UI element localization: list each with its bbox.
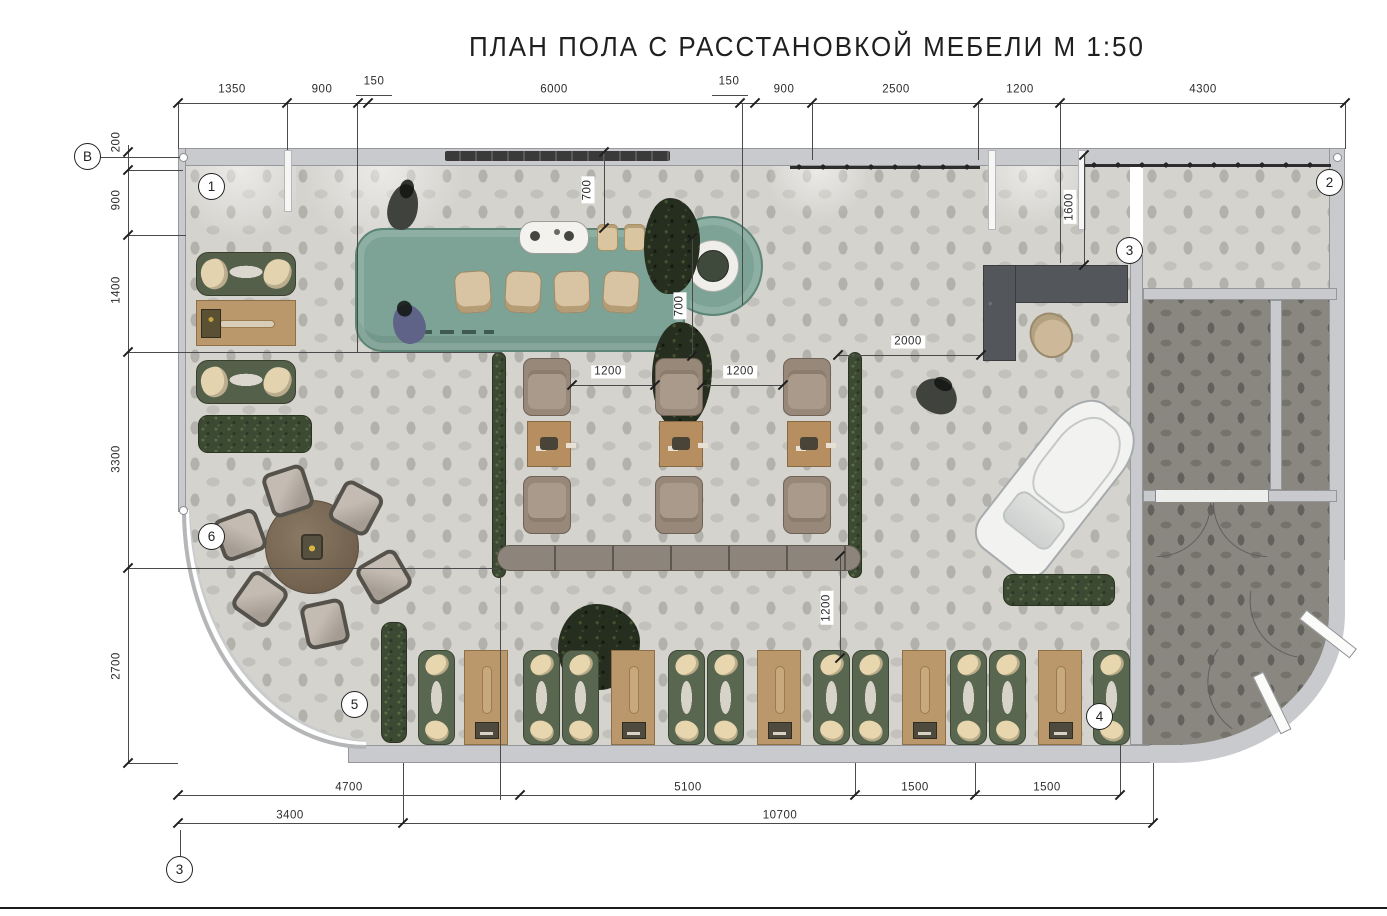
wall-node-3 — [1333, 153, 1342, 162]
hedge-center-left — [492, 352, 506, 578]
coffee-table-1 — [527, 421, 571, 467]
wall-pier-1 — [284, 150, 292, 212]
pedicure-table-5 — [1038, 650, 1082, 745]
wall-partition-h1 — [1143, 288, 1337, 300]
ext-top-right-end — [1345, 103, 1346, 149]
leader-axis3 — [180, 830, 181, 856]
ext-left-170 — [128, 170, 183, 171]
armchair-3a — [783, 358, 831, 416]
pedicure-table-2 — [611, 650, 655, 745]
dimension-label: 1200 — [723, 366, 757, 379]
dimension-label: 200 — [111, 129, 124, 156]
dim-1200-v — [840, 556, 841, 658]
ext-left-235 — [128, 235, 186, 236]
door-gap-fitting — [1155, 490, 1269, 502]
leader-B — [100, 157, 180, 158]
dimension-label: 2000 — [891, 336, 925, 349]
axis-marker: 3 — [1116, 237, 1143, 264]
fitting-hall-floor — [1143, 166, 1337, 290]
dimension-label: 1350 — [215, 84, 249, 97]
dimension-label: 6000 — [537, 84, 571, 97]
armchair-2a — [655, 358, 703, 416]
ext-top-left-end — [178, 103, 179, 149]
ext-bot-500 — [500, 575, 501, 800]
dimension-label: 3400 — [273, 810, 307, 823]
hedge-center-right — [848, 352, 862, 578]
dimension-label: 2500 — [879, 84, 913, 97]
ext-bot-1120 — [1120, 745, 1121, 795]
dim-1600 — [1084, 155, 1085, 265]
wall-partition-v2 — [1270, 300, 1282, 490]
bar-cup-2 — [624, 224, 645, 251]
ext-742 — [742, 103, 743, 305]
wall-node-1 — [179, 153, 188, 162]
manicure-table — [196, 300, 296, 346]
axis-marker: В — [74, 143, 101, 170]
dimension-label: 150 — [716, 76, 743, 89]
dimension-label: 4700 — [332, 782, 366, 795]
ext-812 — [812, 103, 813, 160]
pedicure-lounger-6 — [813, 650, 850, 745]
ext-bot-1153 — [1153, 763, 1154, 823]
pedicure-lounger-10 — [1093, 650, 1130, 745]
bar-stool-3 — [553, 270, 590, 313]
wall-pier-2 — [988, 150, 996, 230]
dim-chain-top — [178, 103, 1345, 104]
wall-bottom — [348, 745, 1160, 763]
dim-chain-left — [128, 145, 129, 763]
wall-right — [1329, 148, 1345, 578]
dimension-label: 1500 — [1030, 782, 1064, 795]
floor-plan-canvas: ПЛАН ПОЛА С РАССТАНОВКОЙ МЕБЕЛИ М 1:50 1… — [0, 0, 1387, 916]
ext-left-568 — [128, 568, 498, 569]
pedicure-lounger-7 — [852, 650, 889, 745]
wall-node-2 — [179, 506, 188, 515]
armchair-1b — [523, 476, 571, 534]
ext-left-763 — [128, 763, 178, 764]
pedicure-table-4 — [902, 650, 946, 745]
pedicure-lounger-1 — [418, 650, 455, 745]
leader-150-right — [712, 95, 748, 96]
ext-287 — [287, 103, 288, 150]
hedge-left — [198, 415, 312, 453]
dimension-label: 900 — [111, 187, 124, 214]
clothes-rack-1 — [790, 158, 980, 176]
pedicure-table-1 — [464, 650, 508, 745]
dimension-label: 10700 — [760, 810, 800, 823]
wall-left — [178, 148, 186, 512]
room-a-floor — [1143, 290, 1337, 490]
dim-1200-b — [702, 385, 783, 386]
dim-chain-bottom-2 — [178, 823, 1153, 824]
axis-marker: 1 — [198, 173, 225, 200]
dimension-label: 1600 — [1064, 190, 1077, 224]
pedicure-lounger-2 — [523, 650, 560, 745]
axis-marker: 4 — [1086, 703, 1113, 730]
pedicure-lounger-8 — [950, 650, 987, 745]
coffee-table-2 — [659, 421, 703, 467]
bar-stool-4 — [602, 270, 641, 314]
dimension-label: 3300 — [111, 442, 124, 476]
coffee-table-3 — [787, 421, 831, 467]
axis-marker: 2 — [1316, 169, 1343, 196]
ext-bot-403 — [403, 763, 404, 823]
dimension-label: 1200 — [591, 366, 625, 379]
axis-marker: 3 — [166, 856, 193, 883]
ext-bot-855 — [855, 763, 856, 795]
hedge-bottom-left — [381, 622, 407, 743]
dimension-label: 1500 — [898, 782, 932, 795]
bench-long — [497, 545, 861, 571]
wall-corner-curve — [1150, 560, 1345, 763]
dim-700-a — [604, 152, 605, 228]
manicure-sofa-2 — [196, 360, 296, 404]
armchair-3b — [783, 476, 831, 534]
dim-chain-bottom-1 — [178, 795, 1120, 796]
coffee-machine — [519, 221, 589, 254]
axis-marker: 6 — [198, 523, 225, 550]
dimension-label: 1400 — [111, 273, 124, 307]
dimension-label: 1200 — [821, 591, 834, 625]
dimension-label: 900 — [771, 84, 798, 97]
armchair-1a — [523, 358, 571, 416]
sheet-border-line — [0, 907, 1387, 909]
dimension-label: 900 — [309, 84, 336, 97]
chair-6 — [299, 597, 352, 651]
dimension-label: 5100 — [671, 782, 705, 795]
axis-marker: 5 — [341, 691, 368, 718]
reception-desk-side — [983, 265, 1016, 361]
bar-stool-2 — [504, 270, 542, 314]
ext-978 — [978, 103, 979, 160]
pedicure-lounger-4 — [668, 650, 705, 745]
ext-bot-975 — [975, 763, 976, 795]
dimension-label: 700 — [674, 293, 687, 320]
dimension-label: 4300 — [1186, 84, 1220, 97]
dimension-label: 2700 — [111, 649, 124, 683]
wall-partition-vertical — [1130, 255, 1143, 745]
pedicure-lounger-3 — [562, 650, 599, 745]
hedge-car — [1003, 574, 1115, 606]
pedicure-lounger-9 — [989, 650, 1026, 745]
dim-1200-a — [572, 385, 655, 386]
armchair-2b — [655, 476, 703, 534]
dim-700-b — [692, 238, 693, 356]
wall-shelf — [445, 151, 670, 161]
dimension-label: 150 — [361, 76, 388, 89]
pedicure-lounger-5 — [707, 650, 744, 745]
dim-2000 — [838, 355, 981, 356]
dimension-label: 1200 — [1003, 84, 1037, 97]
bar-cup-1 — [597, 224, 618, 251]
manicure-sofa-1 — [196, 252, 296, 296]
bar-stool-1 — [454, 270, 493, 314]
ext-1060 — [1060, 103, 1061, 263]
dimension-label: 700 — [582, 177, 595, 204]
leader-150-left — [356, 95, 392, 96]
ext-357 — [357, 103, 358, 353]
pedicure-table-3 — [757, 650, 801, 745]
ext-left-352 — [128, 352, 502, 353]
clothes-rack-2 — [1085, 156, 1331, 174]
page-title: ПЛАН ПОЛА С РАССТАНОВКОЙ МЕБЕЛИ М 1:50 — [469, 31, 1145, 64]
